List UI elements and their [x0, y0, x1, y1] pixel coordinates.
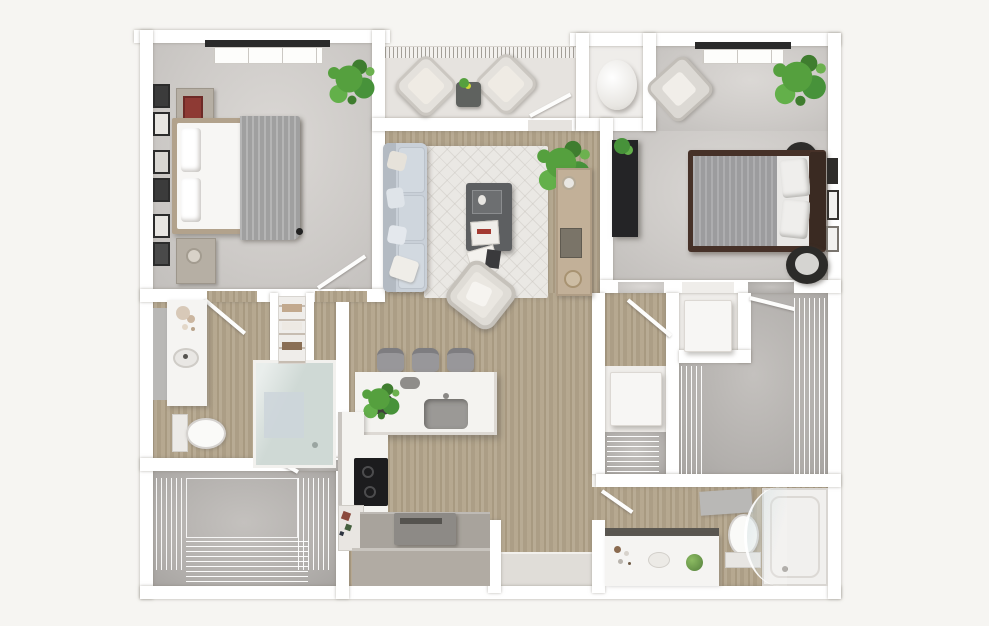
bedroom-1-door-gap [315, 291, 367, 302]
book-accent [477, 229, 491, 234]
round-chair-cushion [795, 253, 819, 275]
vanity-plant-ball-icon [686, 554, 703, 571]
table-lamp-icon [186, 248, 202, 264]
cooktop [354, 458, 388, 506]
vanity-bottles-icon [614, 546, 621, 553]
wall-art-frame-icon [153, 214, 170, 238]
bedroom-2-plant-icon [782, 62, 813, 93]
wall-right [828, 33, 841, 599]
wall-art-frame-icon [153, 84, 170, 108]
console-basket-icon [564, 270, 582, 288]
wall-kitchen-right-upper [592, 293, 605, 474]
kitchen-base-cabinets [352, 548, 490, 586]
bed-2-pillow [779, 199, 811, 240]
black-dresser [612, 140, 638, 237]
wall-art-frame-icon [153, 112, 170, 136]
wall-kitchen-right-lower [592, 520, 605, 593]
bedroom-2-ceiling-light [702, 49, 784, 64]
cooktop-burner-icon [362, 466, 374, 478]
bar-stool [412, 348, 439, 372]
towel-icon [282, 322, 302, 330]
closet-1-shelf-bottom [186, 538, 308, 582]
coat-shelf-clothes [607, 434, 659, 472]
closet-2-door-gap [748, 282, 794, 293]
reading-light-icon [296, 228, 303, 235]
dryer-icon [610, 372, 662, 426]
sofa-pillow [386, 187, 406, 209]
wall-art-frame-icon [153, 150, 170, 174]
wall-art-frame-icon [153, 242, 170, 266]
tray-decor-icon [478, 195, 486, 205]
sink-faucet-icon [183, 354, 188, 359]
wall-left [140, 30, 153, 599]
closet-2-shelf-left [681, 366, 703, 474]
bedroom-2-ceiling-light-bar [695, 42, 791, 49]
console-vase-icon [562, 176, 576, 190]
coffee-table-tray [472, 190, 502, 214]
wall-bathroom2-top [596, 474, 841, 487]
cooktop-burner-icon [364, 486, 376, 498]
bedroom-1-ceiling-light-bar [205, 40, 330, 47]
wall-art-frame-icon [827, 190, 839, 220]
balcony-door-gap [528, 120, 572, 131]
vanity-flowers-icon [176, 306, 190, 320]
closet-1-shelf-left [156, 478, 186, 570]
wall-art-frame-icon [827, 158, 838, 184]
shower-drain-icon [312, 442, 318, 448]
bedroom-2-door-gap [618, 282, 664, 293]
bathroom-1-door-gap [207, 291, 257, 302]
closet-2-shelf-right [804, 298, 828, 474]
bathroom-2-mirror [699, 488, 753, 516]
bar-stool [377, 348, 404, 372]
bedroom-1-plant-icon [336, 66, 363, 93]
towel-icon [282, 342, 302, 350]
island-sink [424, 399, 468, 429]
closet-1-wire-frame [186, 478, 298, 538]
wall-closet2-left [666, 293, 679, 474]
water-heater-icon [597, 60, 637, 110]
floor-plan-render: { "scene": { "kind": "3d-top-down-floor-… [0, 0, 989, 626]
closet-1-shelf-right [298, 478, 332, 570]
island-plant-icon [368, 388, 390, 410]
bed-2-pillow [779, 158, 811, 199]
sofa-pillow [387, 225, 408, 246]
wall-art-frame-icon [153, 178, 170, 202]
wall-utility-left [576, 33, 589, 131]
dresser-plant-icon [614, 138, 630, 154]
bed-2-headboard [810, 152, 826, 250]
bed-1-pillow [181, 178, 201, 222]
laundry-niche-1-gap [682, 282, 734, 293]
washer-icon [684, 300, 732, 352]
appliance-vent-slot [400, 518, 442, 524]
toilet-1-bowl [186, 418, 226, 449]
closet-2-wire-column [794, 298, 804, 474]
wall-linen-left [270, 293, 278, 365]
wall-linen-right [306, 293, 314, 365]
bedroom-1-ceiling-light [213, 47, 323, 64]
towel-icon [282, 304, 302, 312]
bathroom-1-mirror [153, 308, 167, 400]
entry-mat [501, 552, 592, 588]
wall-art-frame-icon [826, 226, 839, 252]
table-plant-icon [459, 78, 469, 88]
island-faucet-icon [443, 393, 449, 399]
console-tray [560, 228, 582, 258]
shower-mat [264, 392, 304, 438]
bed-2-blanket [693, 156, 777, 246]
bed-1-throw-blanket [240, 116, 300, 240]
apartment-floor-plan [0, 0, 989, 626]
vanity-sink-2 [648, 552, 670, 568]
bed-1-pillow [181, 128, 201, 172]
bar-stool [447, 348, 474, 372]
island-bowl-icon [400, 377, 420, 389]
